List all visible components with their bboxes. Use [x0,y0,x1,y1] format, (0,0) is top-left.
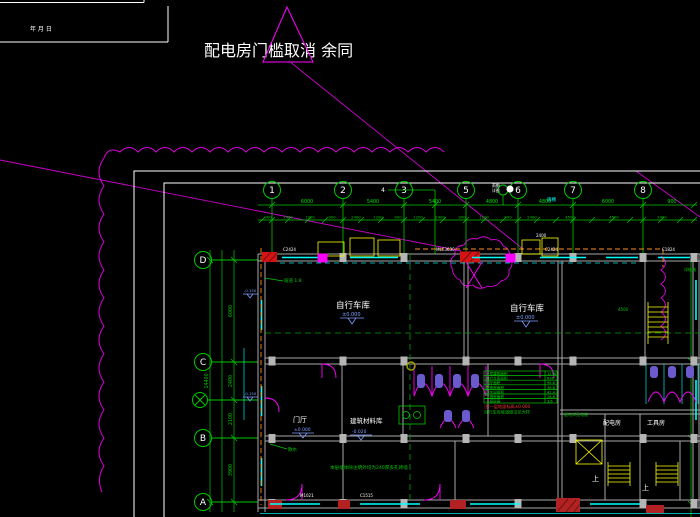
stair-2 [656,462,678,486]
grid-label-8: 8 [640,186,646,196]
tag-w1: C2424 [283,247,296,252]
elev-mini-1: -0.150 [244,288,257,293]
grid-label-3: 3 [401,186,407,196]
grid-label-B: B [200,434,206,444]
schedule-r1-name: 自行车库面积 [486,376,508,381]
grid-label-A: A [200,498,207,508]
schedule-r5-val: 28.6 [547,395,556,399]
room-power: 配电房 [603,419,621,427]
dim-minor-11: 900 [504,215,512,220]
schedule-r2-val: 98.6 [547,381,556,385]
dim-minor-2: 1200 [305,215,315,220]
schedule-r3-name: 配电房面积 [486,385,504,390]
grid-bubble-aux-dot [507,186,514,193]
room-garage2: 自行车库 [510,303,545,314]
tag-w3: C2424 [545,247,558,252]
schedule-r0-val: 1256 [547,372,557,376]
dim-left-1: 2400 [228,375,234,387]
schedule-r3-val: 36.8 [547,386,556,390]
grid-label-5: 5 [463,186,469,196]
schedule-r2-name: 门厅面积 [486,380,501,385]
grid-label-D: D [200,256,207,266]
tag-white-dim: 2400 [536,233,547,238]
dim-minor-13: 4500 [565,215,575,220]
elev-hall: ±0.000 [294,427,311,433]
dim-major-1: 5400 [367,199,379,205]
elev-material: -0.020 [352,429,367,435]
dim-major-3: 4800 [486,199,498,205]
dim-major-6: 900 [667,199,676,205]
dim-minor-8: 2400 [435,215,445,220]
dim-minor-9: 900 [458,215,466,220]
revision-note-text: 配电房门槛取消 余同 [204,41,353,60]
dim-minor-10: 1200 [479,215,489,220]
grid-label-1: 1 [269,186,275,196]
schedule-r4-name: 卫生间面积 [486,389,504,394]
dim-left-total: 14400 [204,373,210,388]
drawing-background [0,0,700,517]
schedule-r4-val: 42.4 [547,390,556,394]
door-block-2 [506,254,515,262]
dim-left-3: 3900 [228,464,234,476]
dim-minor-12: 2400 [527,215,537,220]
note-power: 配电详见电施 [564,411,588,417]
stair-up-2: 上 [642,483,649,492]
dim-minor-15: 2400 [657,215,667,220]
grid-label-2: 2 [340,186,346,196]
dim-major-5: 6000 [602,199,614,205]
schedule-r6-val: 3.6 [547,399,553,403]
tag-w4: C1824 [662,247,675,252]
schedule-r6-name: 一层层高 [486,398,501,403]
elev-garage1: ±0.000 [342,312,361,318]
schedule-r0-name: 一层建筑面积 [486,371,508,376]
tag-w2: MLC3630 [436,247,455,252]
dim-major-2: 5400 [429,199,441,205]
dim-minor-6: 900 [394,215,402,220]
dim-minor-0: 900 [264,215,272,220]
dim-minor-3: 900 [328,215,336,220]
dim-minor-5: 1200 [373,215,383,220]
elev-garage2: ±0.000 [516,315,535,321]
dim-left-2: 2100 [228,413,234,425]
schedule-r5-name: 工具房面积 [486,394,504,399]
grid-label-6: 6 [515,186,521,196]
note-canopy: 雨棚 [547,196,556,203]
grid-label-7: 7 [570,186,576,196]
room-material: 建筑材料库 [350,416,383,425]
schedule-r1-val: 836 [547,377,555,381]
room-tool: 工具房 [647,419,665,427]
title-block-date: 年 月 日 [30,25,52,33]
door-block-1 [318,254,327,262]
grid-label-C: C [200,358,206,368]
dim-major-0: 6000 [301,199,313,205]
note-ramp: 坡道 1:8 [284,277,302,284]
note-struct: 详结施 [684,266,696,272]
schedule-note-green: 自行车库坡道做法见大样 [484,409,530,416]
tag-d1: M1021 [300,493,314,498]
room-garage1: 自行车库 [336,300,371,311]
dim-minor-1: 2400 [283,215,293,220]
cad-canvas: 年 月 日 配电房门槛取消 余同 1 2 3 4 5 [0,0,700,517]
stair-1 [608,462,630,486]
dim-minor-7: 1200 [413,215,423,220]
dim-minor-4: 2400 [351,215,361,220]
aux-bubble-note-2: 详图 [492,188,500,193]
room-hall: 门厅 [293,415,307,424]
tag-d2: C1515 [360,493,373,498]
note-4500: 4500 [618,307,629,312]
dim-left-0: 6000 [228,305,234,317]
stair-up-1: 上 [592,474,599,483]
grid-label-4: 4 [381,187,385,194]
elev-mini-2: -0.150 [244,391,257,396]
note-sanshui: 散水 [288,446,297,453]
note-wall: 本层墙体除注明外均为240厚多孔砖墙 [330,464,408,471]
dim-minor-14: 4500 [609,215,619,220]
